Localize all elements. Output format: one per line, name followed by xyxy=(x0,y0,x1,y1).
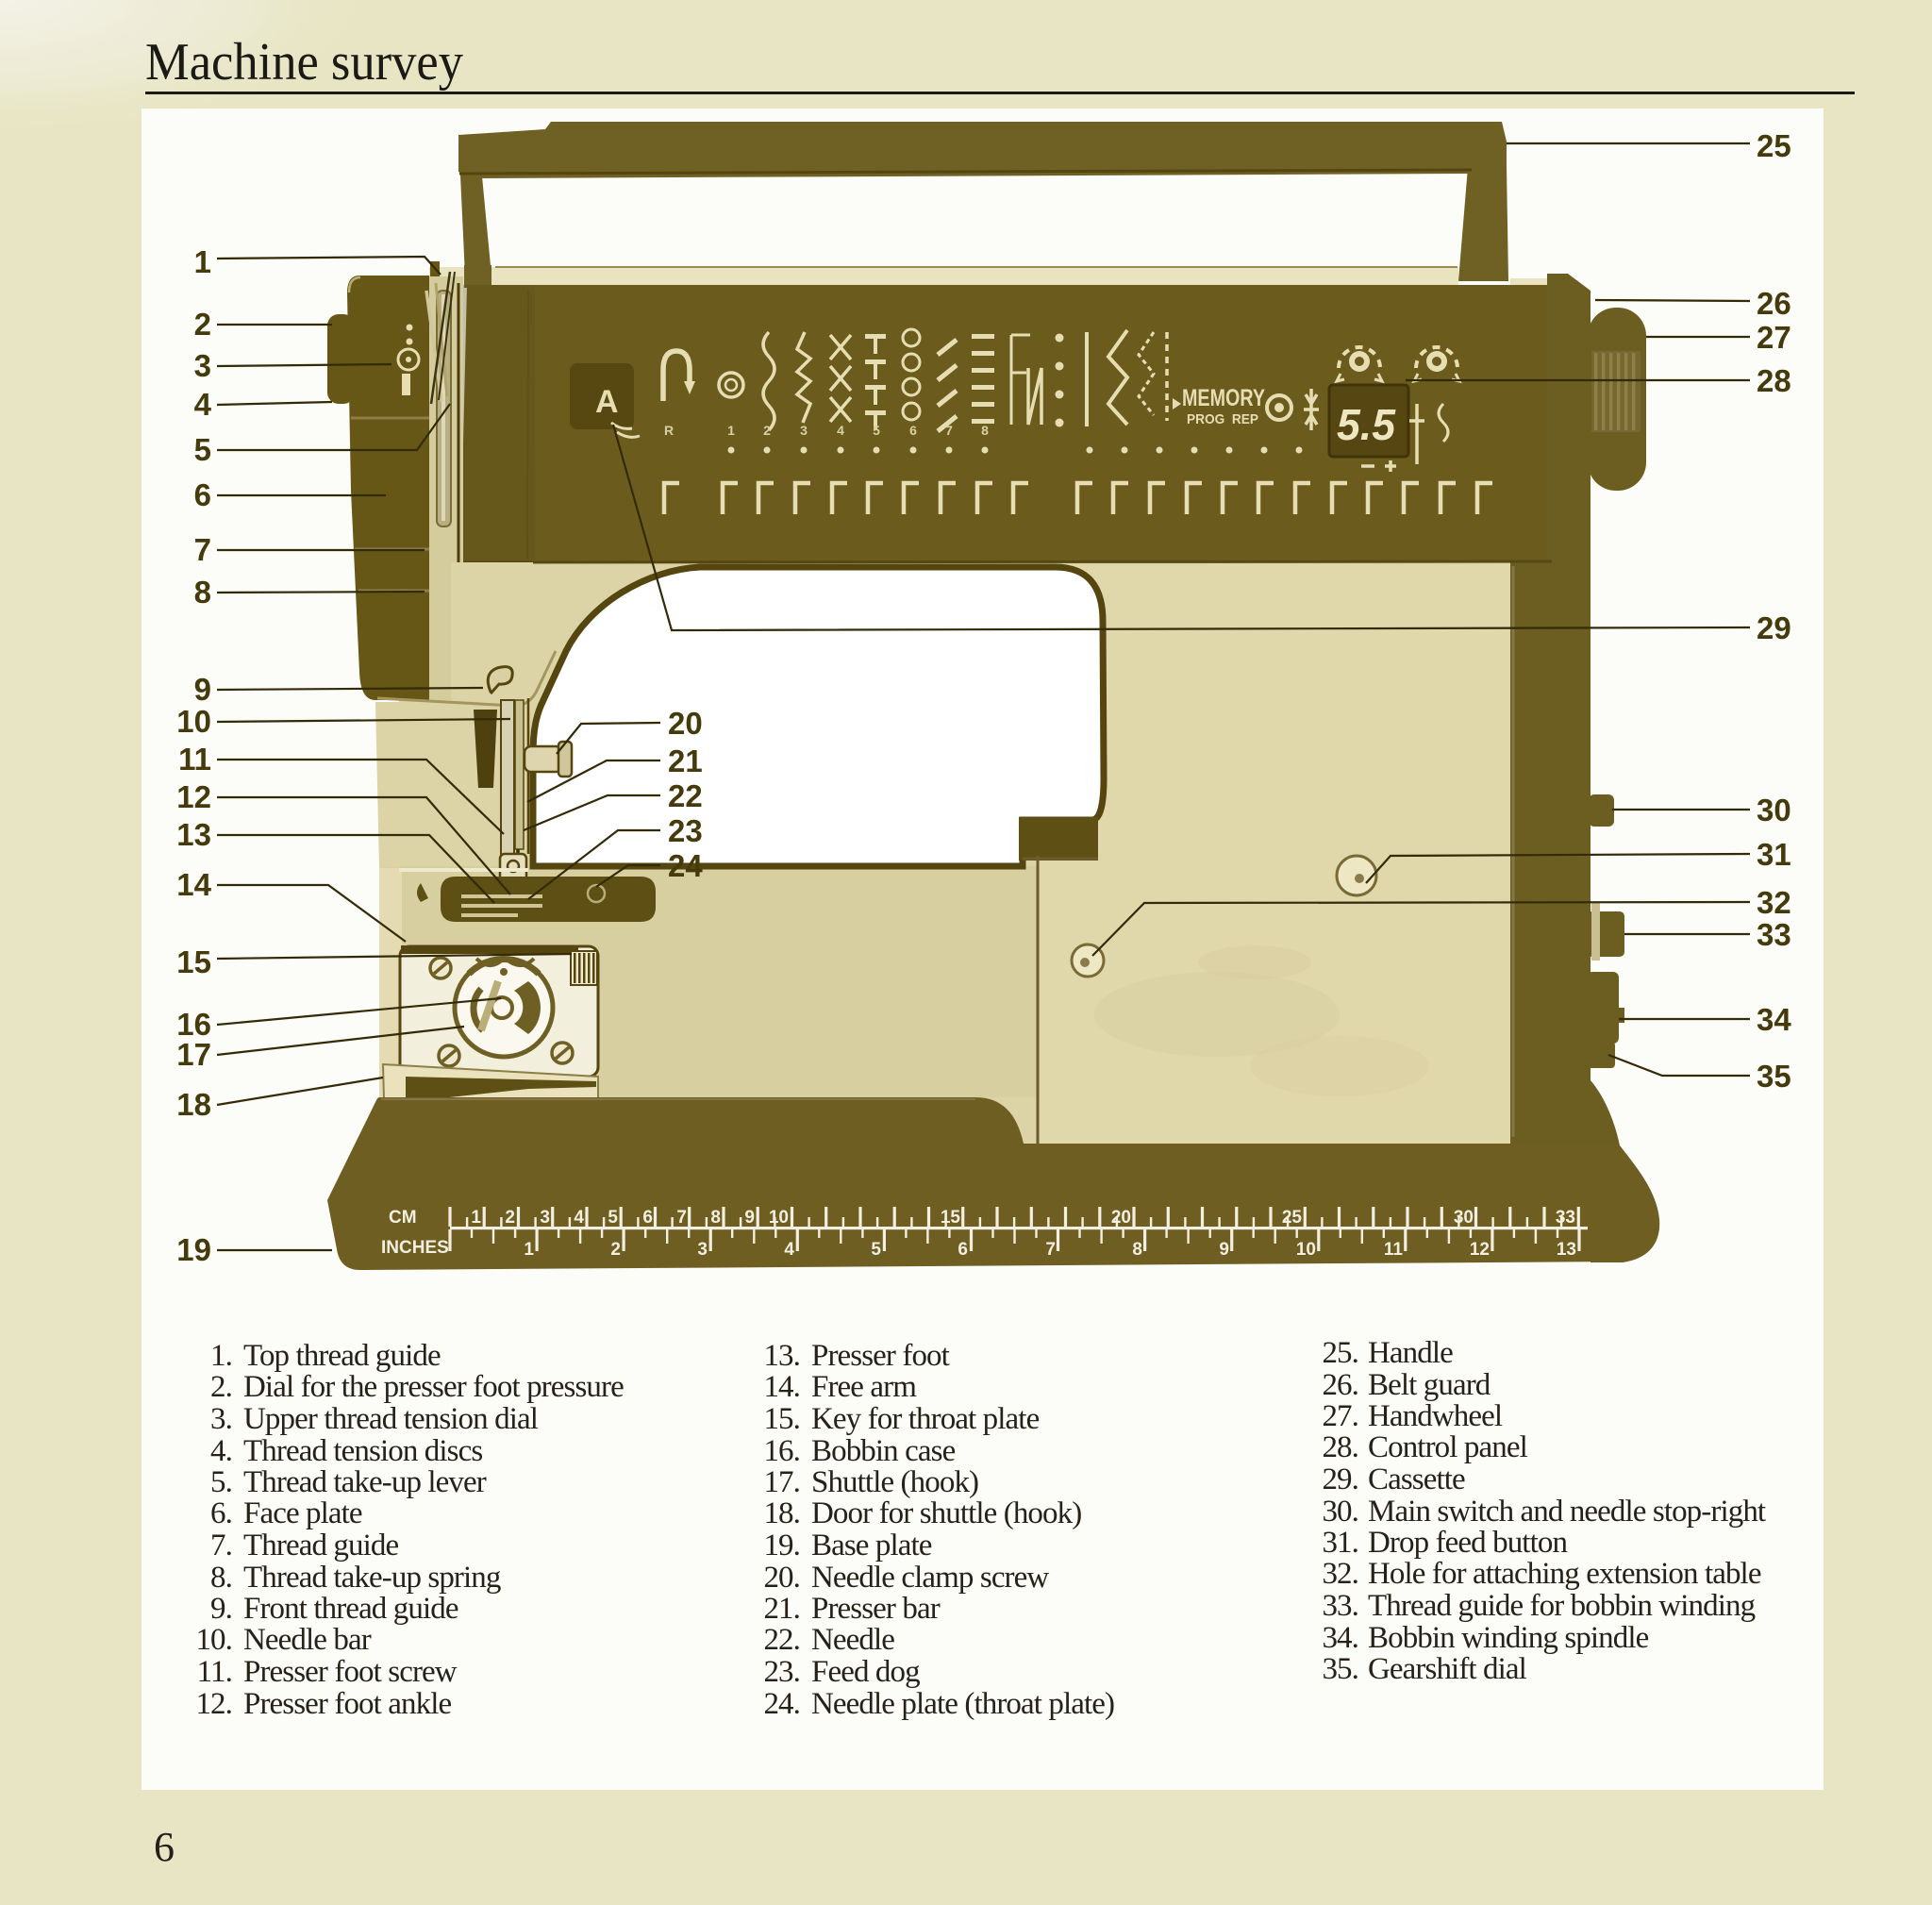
svg-text:Upper thread tension dial: Upper thread tension dial xyxy=(243,1402,539,1436)
svg-text:34.: 34. xyxy=(1322,1621,1358,1655)
svg-text:R: R xyxy=(664,423,674,438)
svg-text:6.: 6. xyxy=(210,1496,232,1530)
svg-text:9: 9 xyxy=(744,1208,755,1228)
svg-text:Needle plate (throat plate): Needle plate (throat plate) xyxy=(811,1687,1114,1721)
svg-text:26.: 26. xyxy=(1322,1368,1358,1402)
svg-text:33: 33 xyxy=(1556,1208,1575,1228)
svg-text:16.: 16. xyxy=(763,1434,800,1468)
svg-text:13.: 13. xyxy=(763,1339,800,1373)
svg-text:Presser foot ankle: Presser foot ankle xyxy=(243,1687,451,1721)
svg-text:19.: 19. xyxy=(763,1529,800,1562)
svg-text:Top thread guide: Top thread guide xyxy=(243,1339,441,1373)
svg-text:Dial for the presser foot pres: Dial for the presser foot pressure xyxy=(243,1370,624,1404)
svg-text:19: 19 xyxy=(176,1232,211,1267)
svg-text:6: 6 xyxy=(642,1208,653,1228)
svg-text:20.: 20. xyxy=(763,1561,800,1595)
svg-text:Thread take-up spring: Thread take-up spring xyxy=(243,1561,501,1595)
svg-text:3: 3 xyxy=(697,1240,708,1260)
svg-text:3.: 3. xyxy=(210,1402,232,1436)
svg-text:2: 2 xyxy=(194,307,211,342)
svg-text:25: 25 xyxy=(1282,1208,1303,1228)
svg-text:30.: 30. xyxy=(1322,1495,1358,1529)
svg-text:12: 12 xyxy=(176,779,211,814)
svg-text:29.: 29. xyxy=(1322,1462,1358,1496)
svg-text:33: 33 xyxy=(1757,917,1791,952)
svg-text:23.: 23. xyxy=(763,1655,800,1689)
svg-text:8: 8 xyxy=(1132,1240,1142,1260)
svg-text:32: 32 xyxy=(1757,885,1791,920)
svg-text:7: 7 xyxy=(945,423,953,438)
svg-text:Key for throat plate: Key for throat plate xyxy=(811,1402,1040,1436)
svg-text:Base plate: Base plate xyxy=(811,1529,932,1562)
svg-text:Machine survey: Machine survey xyxy=(145,33,463,92)
svg-text:13: 13 xyxy=(176,817,211,852)
svg-text:5: 5 xyxy=(194,432,211,467)
svg-text:Needle bar: Needle bar xyxy=(243,1623,372,1657)
svg-text:5.5: 5.5 xyxy=(1337,400,1396,449)
svg-text:5: 5 xyxy=(873,423,880,438)
svg-text:Belt guard: Belt guard xyxy=(1368,1368,1491,1402)
svg-text:Handle: Handle xyxy=(1368,1336,1453,1370)
svg-text:8: 8 xyxy=(710,1208,721,1228)
svg-text:7: 7 xyxy=(194,532,211,567)
svg-text:21.: 21. xyxy=(763,1592,800,1626)
svg-text:27.: 27. xyxy=(1322,1399,1358,1433)
svg-text:4: 4 xyxy=(194,387,212,422)
svg-text:5: 5 xyxy=(608,1208,618,1228)
svg-text:9.: 9. xyxy=(210,1592,232,1626)
svg-text:CM: CM xyxy=(389,1208,417,1228)
svg-text:10.: 10. xyxy=(195,1623,232,1657)
svg-text:7.: 7. xyxy=(210,1529,232,1562)
svg-text:INCHES: INCHES xyxy=(381,1238,449,1258)
svg-text:9: 9 xyxy=(194,672,211,707)
svg-text:15: 15 xyxy=(941,1208,961,1228)
svg-text:9: 9 xyxy=(1219,1240,1229,1260)
svg-text:17: 17 xyxy=(176,1037,211,1072)
svg-text:Face plate: Face plate xyxy=(243,1496,362,1530)
svg-text:2.: 2. xyxy=(210,1370,232,1404)
svg-text:Main switch and needle stop-ri: Main switch and needle stop-right xyxy=(1368,1495,1766,1529)
svg-text:4: 4 xyxy=(574,1208,584,1228)
svg-text:32.: 32. xyxy=(1322,1557,1358,1591)
svg-text:12: 12 xyxy=(1470,1240,1490,1260)
svg-text:15.: 15. xyxy=(763,1402,800,1436)
svg-text:2: 2 xyxy=(763,423,771,438)
svg-text:7: 7 xyxy=(1045,1240,1056,1260)
svg-text:10: 10 xyxy=(176,704,211,739)
svg-text:PROG REP: PROG REP xyxy=(1187,411,1258,427)
svg-text:25: 25 xyxy=(1757,128,1791,163)
svg-text:8: 8 xyxy=(981,423,989,438)
svg-text:1: 1 xyxy=(524,1240,534,1260)
svg-text:Hole for attaching extension t: Hole for attaching extension table xyxy=(1368,1557,1761,1591)
svg-text:A: A xyxy=(595,384,619,420)
svg-text:Needle: Needle xyxy=(811,1623,894,1657)
svg-text:1: 1 xyxy=(194,244,211,279)
svg-text:Shuttle (hook): Shuttle (hook) xyxy=(811,1465,978,1499)
svg-text:6: 6 xyxy=(958,1240,968,1260)
svg-text:34: 34 xyxy=(1757,1002,1791,1037)
svg-text:25.: 25. xyxy=(1322,1336,1358,1370)
svg-text:18.: 18. xyxy=(763,1496,800,1530)
svg-text:20: 20 xyxy=(668,706,703,741)
svg-text:10: 10 xyxy=(769,1208,789,1228)
svg-text:35: 35 xyxy=(1757,1059,1791,1094)
svg-text:15: 15 xyxy=(176,944,211,979)
svg-text:13: 13 xyxy=(1557,1240,1576,1260)
svg-text:Bobbin case: Bobbin case xyxy=(811,1434,956,1468)
svg-text:Presser foot: Presser foot xyxy=(811,1339,950,1373)
svg-text:Feed dog: Feed dog xyxy=(811,1655,920,1689)
svg-text:MEMORY: MEMORY xyxy=(1182,385,1265,411)
svg-text:2: 2 xyxy=(610,1240,621,1260)
svg-text:30: 30 xyxy=(1454,1208,1474,1228)
svg-text:31: 31 xyxy=(1757,837,1791,872)
svg-text:Drop feed button: Drop feed button xyxy=(1368,1526,1567,1560)
svg-text:1: 1 xyxy=(471,1208,481,1228)
svg-text:4: 4 xyxy=(784,1240,794,1260)
svg-text:3: 3 xyxy=(540,1208,550,1228)
svg-text:Gearshift dial: Gearshift dial xyxy=(1368,1652,1527,1686)
svg-text:Thread guide for bobbin windin: Thread guide for bobbin winding xyxy=(1368,1589,1756,1623)
svg-text:24.: 24. xyxy=(763,1687,800,1721)
svg-text:7: 7 xyxy=(676,1208,687,1228)
svg-text:31.: 31. xyxy=(1322,1526,1358,1560)
svg-text:12.: 12. xyxy=(195,1687,232,1721)
svg-text:14: 14 xyxy=(176,867,211,902)
svg-text:35.: 35. xyxy=(1322,1652,1358,1686)
svg-text:6: 6 xyxy=(194,477,211,512)
svg-text:Front thread guide: Front thread guide xyxy=(243,1592,458,1626)
svg-text:Cassette: Cassette xyxy=(1368,1462,1465,1496)
svg-text:22: 22 xyxy=(668,778,703,813)
svg-text:6: 6 xyxy=(909,423,917,438)
svg-text:Control panel: Control panel xyxy=(1368,1430,1528,1464)
svg-text:Free arm: Free arm xyxy=(811,1370,917,1404)
svg-text:11.: 11. xyxy=(197,1655,232,1689)
svg-text:22.: 22. xyxy=(763,1623,800,1657)
svg-text:Presser foot screw: Presser foot screw xyxy=(243,1655,458,1689)
svg-text:5: 5 xyxy=(871,1240,881,1260)
svg-text:11: 11 xyxy=(178,742,211,777)
svg-text:2: 2 xyxy=(505,1208,515,1228)
svg-text:28.: 28. xyxy=(1322,1430,1358,1464)
svg-text:28: 28 xyxy=(1757,363,1791,398)
svg-text:11: 11 xyxy=(1384,1240,1404,1260)
svg-text:26: 26 xyxy=(1757,286,1791,321)
svg-text:5.: 5. xyxy=(210,1465,232,1499)
svg-text:Handwheel: Handwheel xyxy=(1368,1399,1503,1433)
svg-text:3: 3 xyxy=(194,348,211,383)
svg-text:3: 3 xyxy=(800,423,808,438)
svg-text:23: 23 xyxy=(668,813,703,848)
svg-text:Thread tension discs: Thread tension discs xyxy=(243,1434,482,1468)
svg-text:4: 4 xyxy=(837,423,844,438)
svg-text:20: 20 xyxy=(1111,1208,1131,1228)
svg-text:Presser bar: Presser bar xyxy=(811,1592,941,1626)
svg-text:30: 30 xyxy=(1757,793,1791,827)
svg-text:29: 29 xyxy=(1757,610,1791,645)
svg-text:6: 6 xyxy=(154,1824,175,1870)
svg-text:17.: 17. xyxy=(763,1465,800,1499)
svg-text:27: 27 xyxy=(1757,320,1791,355)
svg-text:14.: 14. xyxy=(763,1370,800,1404)
svg-text:21: 21 xyxy=(668,744,703,778)
svg-text:Bobbin winding spindle: Bobbin winding spindle xyxy=(1368,1621,1649,1655)
svg-text:Thread guide: Thread guide xyxy=(243,1529,398,1562)
svg-text:33.: 33. xyxy=(1322,1589,1358,1623)
svg-text:Needle clamp screw: Needle clamp screw xyxy=(811,1561,1049,1595)
svg-text:4.: 4. xyxy=(210,1434,232,1468)
svg-text:Thread take-up lever: Thread take-up lever xyxy=(243,1465,487,1499)
svg-text:24: 24 xyxy=(668,848,703,883)
svg-text:Door for shuttle (hook): Door for shuttle (hook) xyxy=(811,1496,1081,1530)
svg-text:10: 10 xyxy=(1296,1240,1316,1260)
svg-text:1: 1 xyxy=(727,423,735,438)
svg-text:18: 18 xyxy=(176,1087,211,1122)
svg-text:8.: 8. xyxy=(210,1561,232,1595)
svg-text:8: 8 xyxy=(194,575,211,610)
svg-text:1.: 1. xyxy=(210,1339,232,1373)
